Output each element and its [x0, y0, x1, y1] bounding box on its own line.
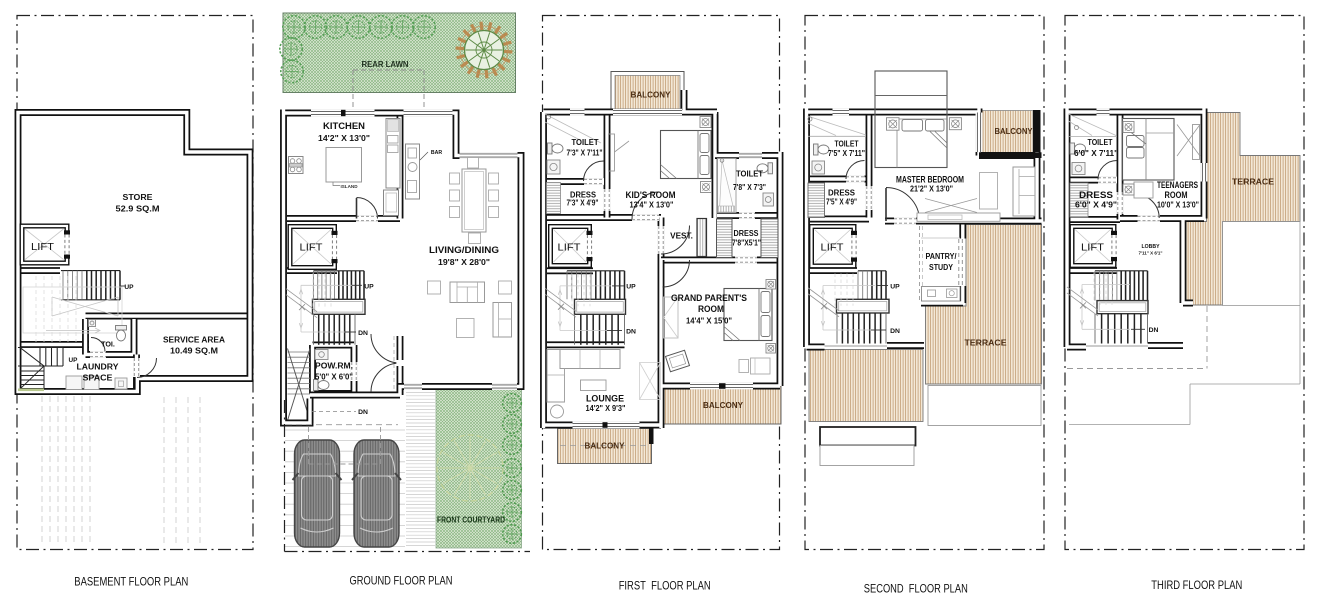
svg-text:14'4" X 15'0": 14'4" X 15'0"	[686, 317, 732, 326]
svg-text:VEST.: VEST.	[670, 232, 693, 241]
svg-text:DN: DN	[1149, 327, 1159, 334]
svg-text:7'8" X 7'3": 7'8" X 7'3"	[733, 183, 766, 192]
svg-text:UP: UP	[124, 284, 134, 291]
svg-text:7'11" X 6'1": 7'11" X 6'1"	[1139, 251, 1163, 257]
svg-text:BALCONY: BALCONY	[585, 442, 626, 451]
svg-text:LIFT: LIFT	[31, 242, 54, 253]
svg-text:PANTRY/: PANTRY/	[926, 251, 958, 261]
svg-text:LAUNDRY: LAUNDRY	[77, 362, 119, 372]
svg-text:LIFT: LIFT	[300, 243, 323, 254]
svg-text:DRESS: DRESS	[828, 188, 855, 198]
svg-text:GROUND FLOOR PLAN: GROUND FLOOR PLAN	[350, 575, 453, 588]
svg-text:MASTER BEDROOM: MASTER BEDROOM	[896, 175, 964, 185]
svg-text:KID'S ROOM: KID'S ROOM	[626, 190, 676, 200]
svg-text:TOILET: TOILET	[572, 137, 600, 147]
svg-text:LIFT: LIFT	[821, 243, 844, 254]
svg-text:ISLAND: ISLAND	[340, 184, 358, 189]
svg-text:LOUNGE: LOUNGE	[586, 394, 624, 404]
svg-text:10.49 SQ.M: 10.49 SQ.M	[170, 346, 218, 356]
svg-text:LOBBY: LOBBY	[1142, 244, 1160, 250]
svg-text:SERVICE AREA: SERVICE AREA	[163, 335, 225, 345]
svg-text:52.9 SQ.M: 52.9 SQ.M	[116, 204, 160, 214]
svg-text:7'3" X 7'11": 7'3" X 7'11"	[567, 149, 603, 158]
svg-text:SPACE: SPACE	[83, 373, 113, 383]
svg-text:FRONT COURTYARD: FRONT COURTYARD	[437, 516, 505, 525]
svg-text:UP: UP	[364, 283, 374, 290]
svg-text:5'0" X 6'0": 5'0" X 6'0"	[315, 373, 353, 382]
svg-text:ROOM: ROOM	[1165, 190, 1188, 200]
svg-text:13'4" X 13'0": 13'4" X 13'0"	[630, 201, 674, 210]
svg-text:BALCONY: BALCONY	[631, 91, 672, 100]
svg-text:TERRACE: TERRACE	[1232, 178, 1275, 187]
svg-text:7'3" X 4'9": 7'3" X 4'9"	[567, 199, 599, 208]
svg-text:21'2" X 13'0": 21'2" X 13'0"	[910, 185, 953, 194]
svg-text:ROOM: ROOM	[698, 304, 724, 314]
svg-text:TOILET: TOILET	[1088, 137, 1114, 147]
svg-text:POW.RM.: POW.RM.	[315, 361, 353, 371]
svg-text:TEENAGERS: TEENAGERS	[1157, 180, 1198, 190]
svg-text:UP: UP	[890, 284, 900, 291]
svg-text:UP: UP	[626, 284, 636, 291]
svg-text:FIRST FLOOR PLAN: FIRST FLOOR PLAN	[619, 580, 711, 593]
svg-text:DN: DN	[626, 328, 636, 335]
svg-text:TOILET: TOILET	[736, 169, 764, 179]
svg-text:REAR LAWN: REAR LAWN	[362, 60, 409, 69]
svg-text:DN: DN	[358, 330, 368, 337]
svg-text:TOILET: TOILET	[835, 139, 860, 149]
svg-text:SECOND FLOOR PLAN: SECOND FLOOR PLAN	[864, 582, 968, 595]
svg-text:14'2" X 9'3": 14'2" X 9'3"	[586, 404, 626, 413]
svg-text:6'0" X 7'11": 6'0" X 7'11"	[1074, 149, 1118, 158]
svg-text:TERRACE: TERRACE	[965, 339, 1008, 348]
svg-text:14'2" X 13'0": 14'2" X 13'0"	[318, 133, 370, 143]
svg-text:BASEMENT FLOOR PLAN: BASEMENT FLOOR PLAN	[74, 576, 188, 589]
svg-text:10'0" X 13'0": 10'0" X 13'0"	[1157, 201, 1199, 210]
svg-text:19'8" X 28'0": 19'8" X 28'0"	[438, 257, 490, 267]
svg-text:DRESS: DRESS	[1079, 190, 1113, 200]
svg-text:GRAND PARENT'S: GRAND PARENT'S	[671, 293, 747, 303]
svg-text:6'0" X 4'9": 6'0" X 4'9"	[1075, 201, 1117, 210]
svg-text:DN: DN	[890, 328, 900, 335]
svg-text:LIFT: LIFT	[558, 243, 581, 254]
svg-text:TOI.: TOI.	[101, 340, 115, 349]
svg-text:THIRD FLOOR PLAN: THIRD FLOOR PLAN	[1151, 579, 1242, 592]
svg-text:DN: DN	[358, 409, 368, 416]
svg-text:STORE: STORE	[123, 192, 153, 202]
svg-text:7'5" X 4'9": 7'5" X 4'9"	[826, 198, 857, 207]
svg-text:7'5" X 7'11": 7'5" X 7'11"	[828, 149, 865, 158]
svg-text:STUDY: STUDY	[929, 262, 953, 272]
svg-text:KITCHEN: KITCHEN	[323, 121, 365, 131]
svg-text:LIVING/DINING: LIVING/DINING	[429, 245, 499, 255]
svg-text:7'8"X5'1": 7'8"X5'1"	[732, 239, 761, 248]
svg-text:LIFT: LIFT	[1081, 243, 1104, 254]
svg-text:BAR: BAR	[431, 150, 442, 156]
svg-text:DRESS: DRESS	[734, 228, 759, 238]
svg-text:BALCONY: BALCONY	[995, 127, 1034, 136]
svg-text:BALCONY: BALCONY	[703, 401, 744, 410]
